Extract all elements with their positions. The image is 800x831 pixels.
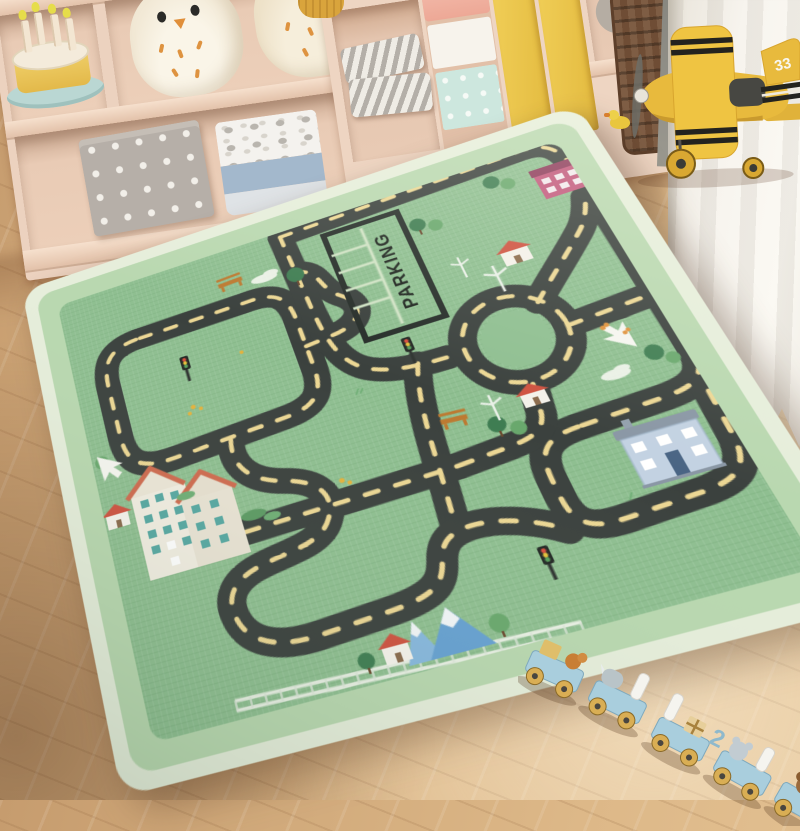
toy-cake (0, 9, 109, 122)
plane-cockpit (729, 77, 766, 107)
train-car-lead (518, 632, 596, 711)
train-number: 2 (705, 724, 729, 754)
chevron-pillow (348, 72, 433, 118)
polka-dot-basket (78, 119, 215, 237)
plane-shadow (637, 165, 794, 191)
toy-train: 2 (518, 626, 800, 826)
white-bin (427, 16, 497, 69)
train-car-rhino (575, 654, 663, 742)
candle-peg (629, 672, 651, 701)
toy-airplane: 33 (608, 15, 800, 197)
mint-polka-box (435, 64, 505, 131)
candle-peg (662, 692, 685, 722)
rubber-duck (608, 108, 634, 130)
cake-candle (33, 12, 45, 45)
candle-peg (754, 746, 776, 773)
playroom-photo: { "scene": { "type": "photograph", "sett… (0, 0, 800, 800)
